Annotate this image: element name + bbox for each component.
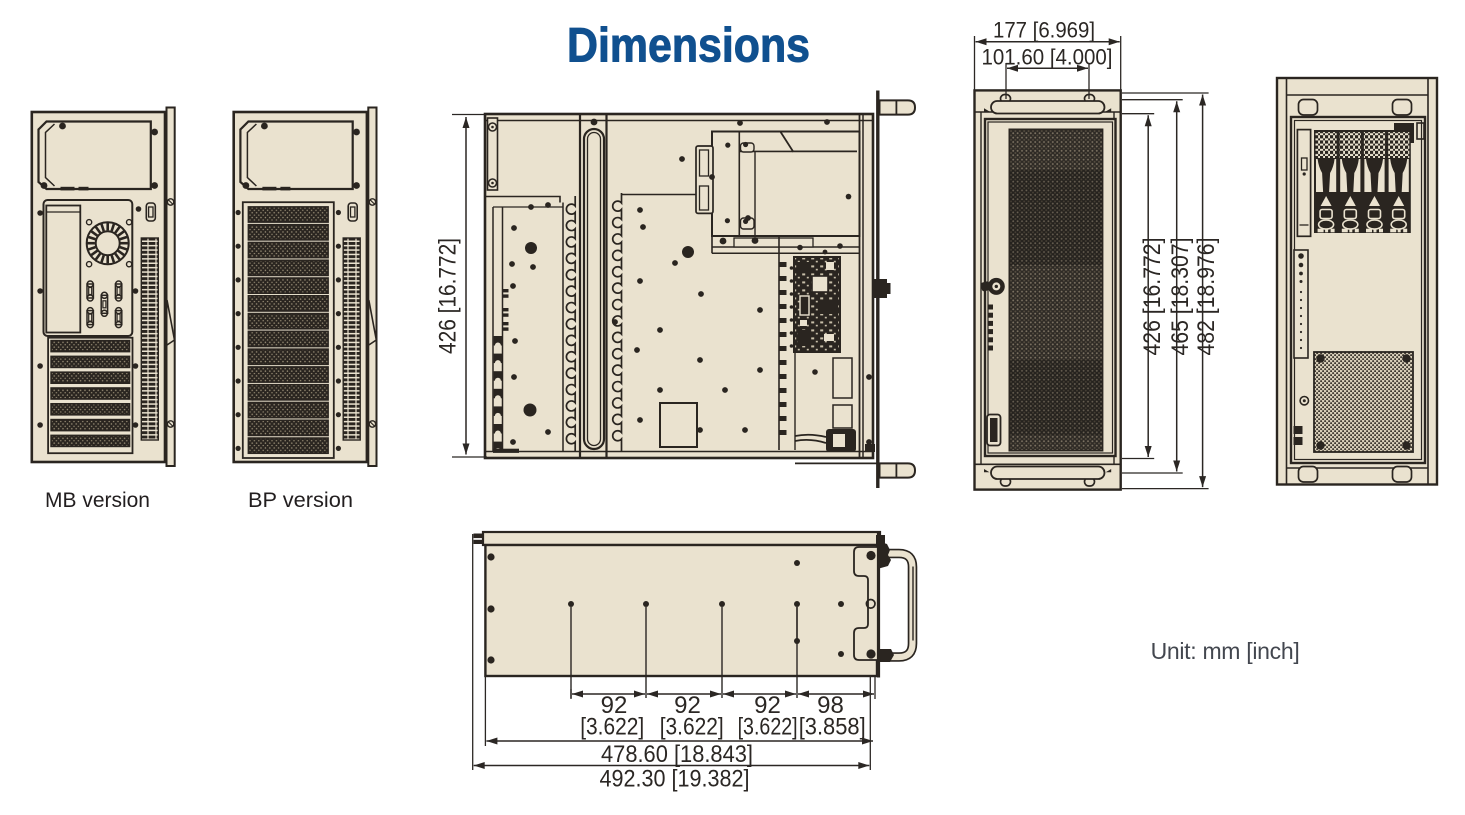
svg-text:Unit: mm [inch]: Unit: mm [inch] <box>1151 638 1300 664</box>
svg-text:478.60 [18.843]: 478.60 [18.843] <box>601 741 753 768</box>
svg-text:101.60 [4.000]: 101.60 [4.000] <box>982 45 1113 70</box>
svg-text:Dimensions: Dimensions <box>567 20 810 73</box>
svg-text:426 [16.772]: 426 [16.772] <box>1139 238 1166 356</box>
svg-text:465 [18.307]: 465 [18.307] <box>1167 238 1194 356</box>
svg-text:BP version: BP version <box>248 488 353 512</box>
svg-text:[3.622]: [3.622] <box>738 714 798 741</box>
svg-text:[3.622]: [3.622] <box>580 714 644 741</box>
svg-text:[3.622]: [3.622] <box>660 714 724 741</box>
svg-text:[3.858]: [3.858] <box>799 714 866 741</box>
svg-text:426 [16.772]: 426 [16.772] <box>435 238 462 354</box>
svg-text:482 [18.976]: 482 [18.976] <box>1193 238 1220 356</box>
svg-text:MB version: MB version <box>45 488 150 512</box>
svg-text:492.30 [19.382]: 492.30 [19.382] <box>600 766 750 793</box>
svg-text:177 [6.969]: 177 [6.969] <box>993 18 1095 43</box>
